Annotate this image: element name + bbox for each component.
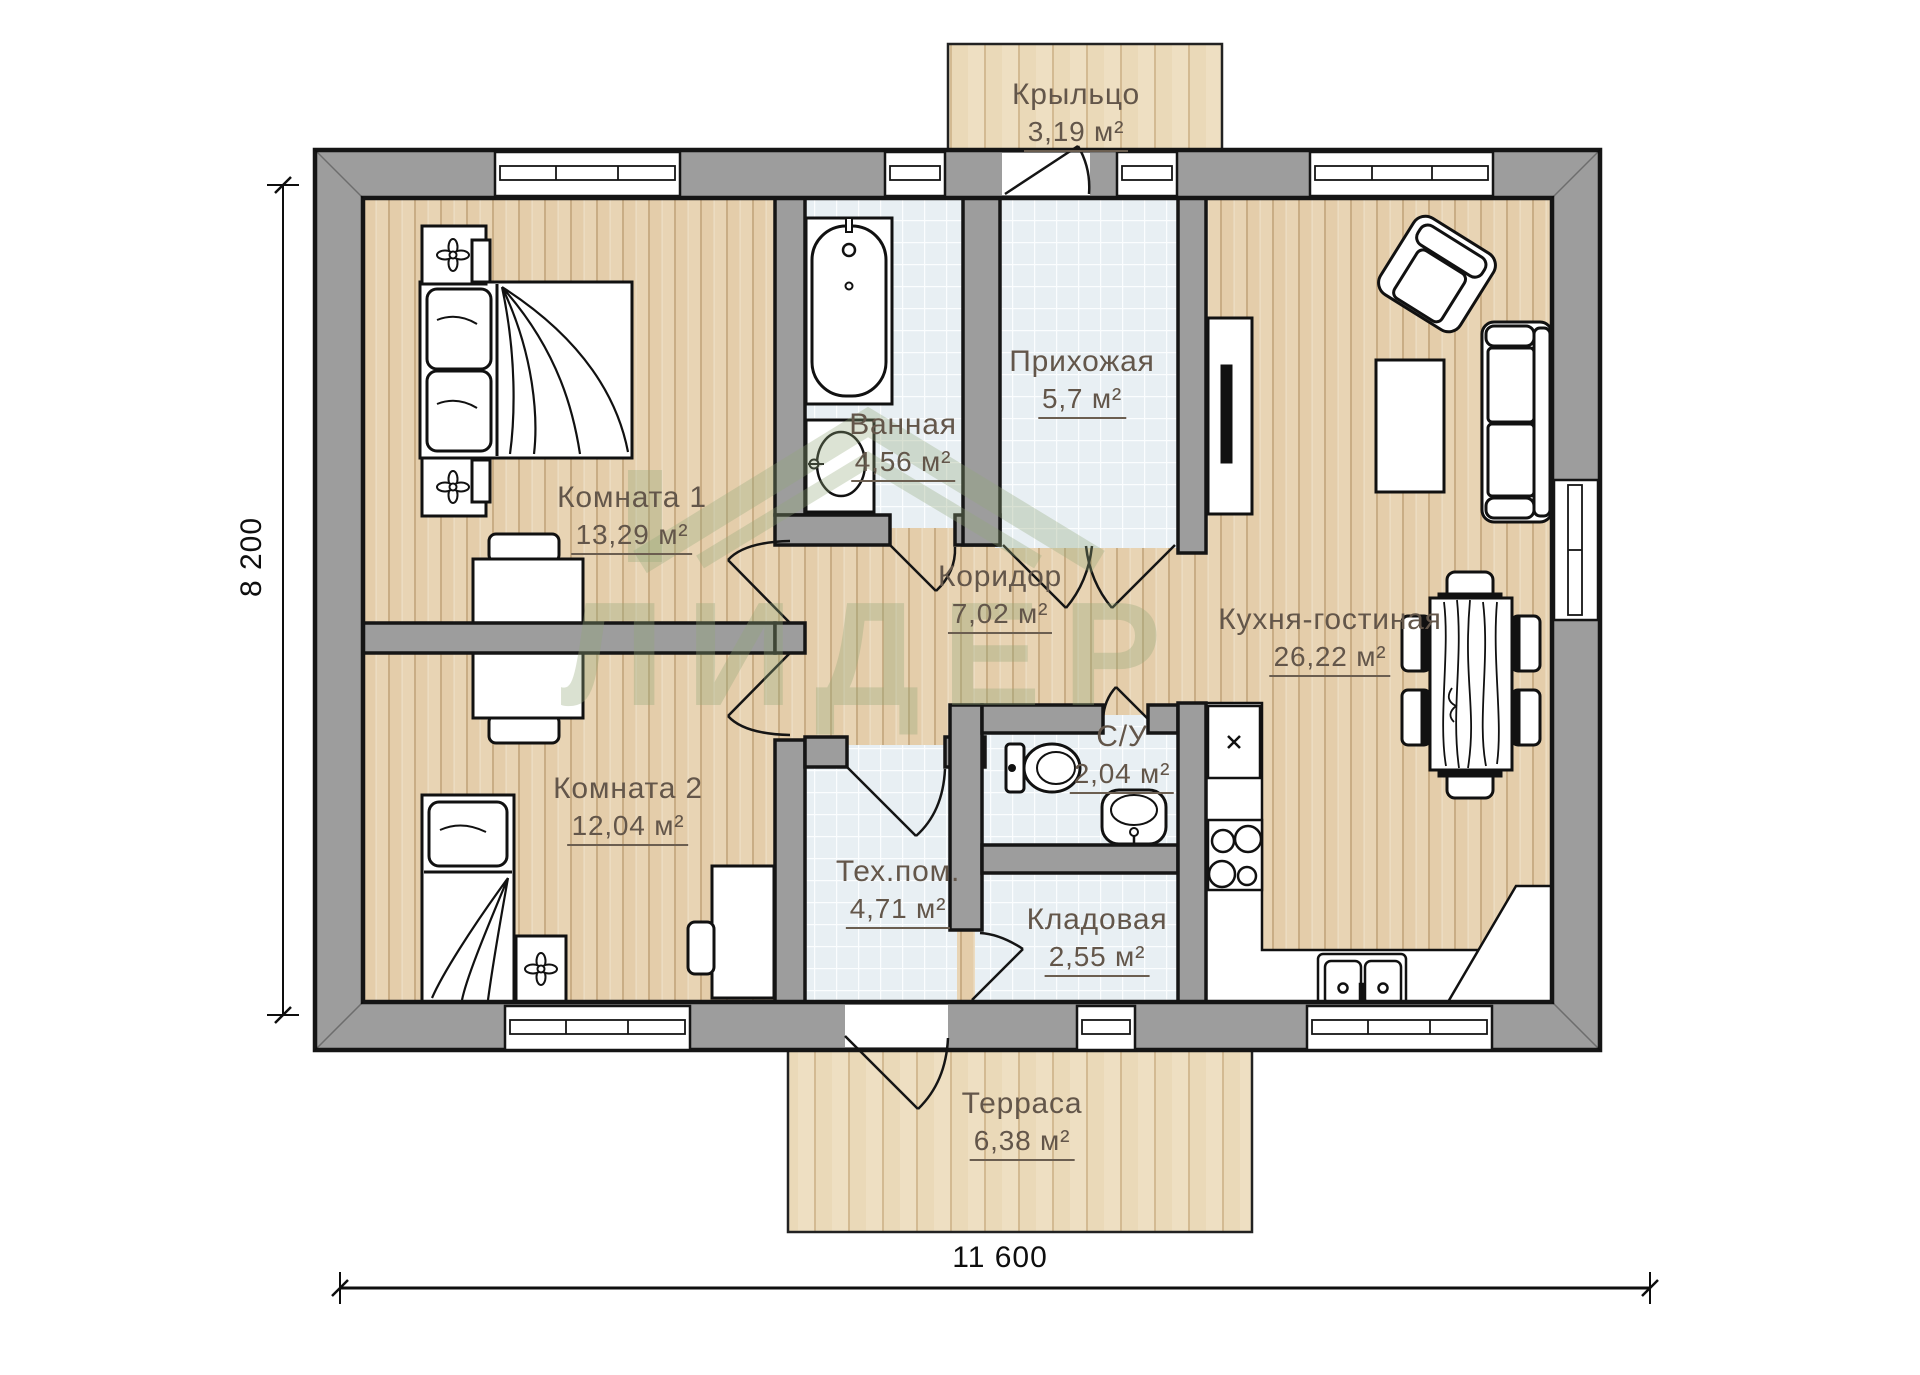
room-area: 4,71 м²: [846, 892, 950, 929]
dimension-width-label: 11 600: [952, 1241, 1048, 1275]
room-label-wc: С/У 2,04 м²: [1070, 720, 1174, 796]
room-area: 26,22 м²: [1270, 640, 1391, 677]
room-name: Тех.пом.: [836, 855, 960, 889]
room-label-room1: Комната 1 13,29 м²: [557, 481, 707, 557]
room-name: Кладовая: [1027, 903, 1168, 937]
room-area: 4,56 м²: [851, 445, 955, 482]
room-label-terrace: Терраса 6,38 м²: [962, 1087, 1083, 1163]
window-storage: [1077, 1006, 1135, 1050]
nightstand-icon: [422, 458, 490, 516]
window-kitchen-top: [1310, 152, 1493, 196]
window-bathroom: [885, 152, 945, 196]
terrace-door-opening: [845, 1005, 948, 1047]
room-label-kitchen-living: Кухня-гостиная 26,22 м²: [1218, 603, 1441, 679]
room-name: Комната 2: [553, 772, 703, 806]
watermark-text: ЛИДЕР: [560, 570, 1183, 740]
room-label-storage: Кладовая 2,55 м²: [1027, 903, 1168, 979]
room-label-hallway: Прихожая 5,7 м²: [1009, 345, 1154, 421]
room-area: 12,04 м²: [568, 809, 689, 846]
bathtub-icon: [806, 218, 892, 404]
nightstand-icon: [422, 226, 490, 284]
single-bed-icon: [422, 795, 514, 1002]
room-area: 6,38 м²: [970, 1124, 1074, 1161]
window-room2: [505, 1006, 690, 1050]
room-name: Кухня-гостиная: [1218, 603, 1441, 637]
window-room1: [495, 152, 680, 196]
room-name: Крыльцо: [1012, 78, 1140, 112]
room-label-corridor: Коридор 7,02 м²: [938, 560, 1062, 636]
wc-sink-icon: [1102, 790, 1166, 848]
room-name: Ванная: [849, 408, 957, 442]
wall-room2-right: [775, 740, 805, 1002]
room-area: 7,02 м²: [948, 597, 1052, 634]
wall-kitchen-left: [1178, 703, 1206, 1002]
window-living-right: [1554, 480, 1598, 620]
window-hallway: [1117, 152, 1177, 196]
floor-plan: ЛИДЕР Крыльцо 3,19 м² Комната 1 13,29 м²…: [0, 0, 1920, 1375]
room-name: С/У: [1070, 720, 1174, 754]
room-label-bathroom: Ванная 4,56 м²: [849, 408, 957, 484]
window-kitchen-bottom: [1307, 1006, 1492, 1050]
double-bed-icon: [420, 282, 632, 458]
coffee-table-icon: [1376, 360, 1444, 492]
wall-bathroom-bottom: [775, 515, 890, 545]
stove-icon: [1208, 820, 1262, 890]
dimension-height-label: 8 200: [235, 517, 269, 597]
sofa-icon: [1482, 322, 1552, 522]
room-area: 13,29 м²: [572, 518, 693, 555]
room-area: 2,04 м²: [1070, 757, 1174, 794]
room-area: 3,19 м²: [1024, 115, 1128, 152]
wall-hallway-right: [1178, 198, 1206, 553]
tv-unit-icon: [1208, 318, 1252, 514]
room-name: Комната 1: [557, 481, 707, 515]
room-name: Коридор: [938, 560, 1062, 594]
room-label-room2: Комната 2 12,04 м²: [553, 772, 703, 848]
room-area: 5,7 м²: [1038, 382, 1126, 419]
room-name: Терраса: [962, 1087, 1083, 1121]
wall-wc-storage-divider: [982, 845, 1178, 873]
room-label-tech-room: Тех.пом. 4,71 м²: [836, 855, 960, 931]
room-name: Прихожая: [1009, 345, 1154, 379]
room-label-porch: Крыльцо 3,19 м²: [1012, 78, 1140, 154]
room-area: 2,55 м²: [1045, 940, 1149, 977]
nightstand-icon: [516, 936, 566, 1002]
